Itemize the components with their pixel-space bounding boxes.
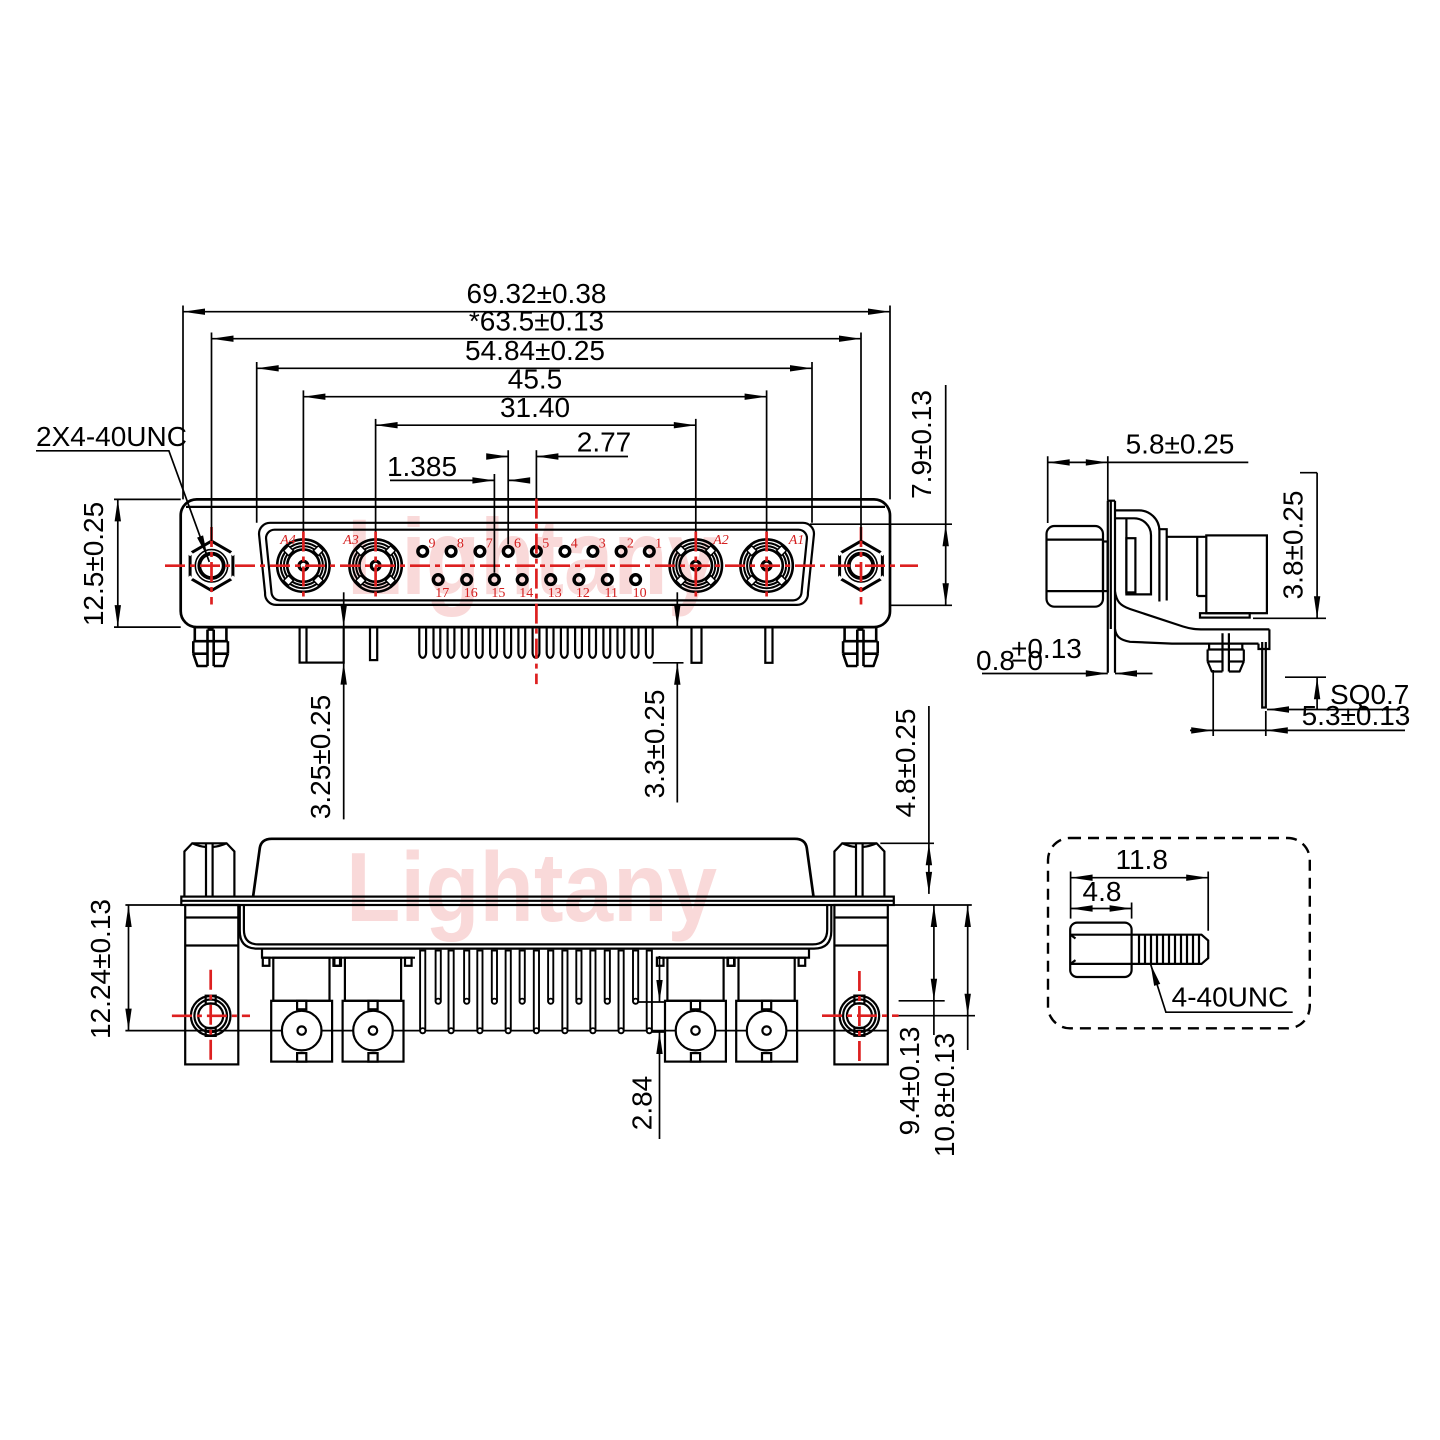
svg-text:4.8±0.25: 4.8±0.25 bbox=[890, 709, 921, 818]
svg-text:11: 11 bbox=[605, 586, 618, 601]
svg-text:2: 2 bbox=[627, 536, 634, 551]
svg-text:2X4-40UNC: 2X4-40UNC bbox=[36, 421, 187, 452]
svg-text:5.8±0.25: 5.8±0.25 bbox=[1126, 429, 1235, 460]
svg-text:16: 16 bbox=[464, 586, 478, 601]
svg-text:11.8: 11.8 bbox=[1115, 844, 1167, 875]
svg-text:69.32±0.38: 69.32±0.38 bbox=[467, 278, 607, 309]
svg-text:10: 10 bbox=[633, 586, 647, 601]
svg-text:3.25±0.25: 3.25±0.25 bbox=[305, 695, 336, 819]
svg-text:12.5±0.25: 12.5±0.25 bbox=[78, 502, 109, 626]
svg-text:*63.5±0.13: *63.5±0.13 bbox=[469, 306, 604, 337]
svg-text:3: 3 bbox=[599, 536, 606, 551]
svg-text:5.3±0.13: 5.3±0.13 bbox=[1302, 700, 1411, 731]
svg-text:7: 7 bbox=[486, 536, 493, 551]
svg-text:A1: A1 bbox=[788, 533, 805, 548]
svg-text:4.8: 4.8 bbox=[1083, 876, 1122, 907]
svg-text:12: 12 bbox=[576, 586, 590, 601]
svg-text:13: 13 bbox=[548, 586, 562, 601]
svg-text:2.84: 2.84 bbox=[627, 1076, 658, 1131]
svg-text:12.24±0.13: 12.24±0.13 bbox=[85, 899, 116, 1039]
svg-text:7.9±0.13: 7.9±0.13 bbox=[906, 390, 937, 499]
svg-text:4: 4 bbox=[571, 536, 578, 551]
svg-text:8: 8 bbox=[457, 536, 464, 551]
svg-text:2.77: 2.77 bbox=[577, 427, 632, 458]
svg-text:4-40UNC: 4-40UNC bbox=[1172, 982, 1289, 1013]
svg-text:1.385: 1.385 bbox=[387, 451, 457, 482]
svg-text:A3: A3 bbox=[342, 533, 359, 548]
svg-text:54.84±0.25: 54.84±0.25 bbox=[465, 335, 605, 366]
svg-text:6: 6 bbox=[514, 536, 521, 551]
svg-text:5: 5 bbox=[542, 536, 549, 551]
svg-text:Lightany: Lightany bbox=[346, 832, 717, 942]
svg-text:17: 17 bbox=[435, 586, 449, 601]
svg-text:10.8±0.13: 10.8±0.13 bbox=[929, 1033, 960, 1157]
svg-text:−0: −0 bbox=[1011, 645, 1043, 676]
svg-text:3.8±0.25: 3.8±0.25 bbox=[1278, 491, 1309, 600]
svg-text:0.8: 0.8 bbox=[976, 645, 1015, 676]
svg-text:9.4±0.13: 9.4±0.13 bbox=[894, 1027, 925, 1136]
svg-text:1: 1 bbox=[655, 536, 662, 551]
svg-text:31.40: 31.40 bbox=[500, 392, 570, 423]
svg-text:3.3±0.25: 3.3±0.25 bbox=[639, 690, 670, 799]
svg-text:9: 9 bbox=[429, 536, 436, 551]
svg-text:45.5: 45.5 bbox=[508, 363, 563, 394]
svg-text:15: 15 bbox=[491, 586, 505, 601]
svg-text:A4: A4 bbox=[279, 533, 296, 548]
svg-text:14: 14 bbox=[519, 586, 533, 601]
svg-text:A2: A2 bbox=[712, 533, 729, 548]
